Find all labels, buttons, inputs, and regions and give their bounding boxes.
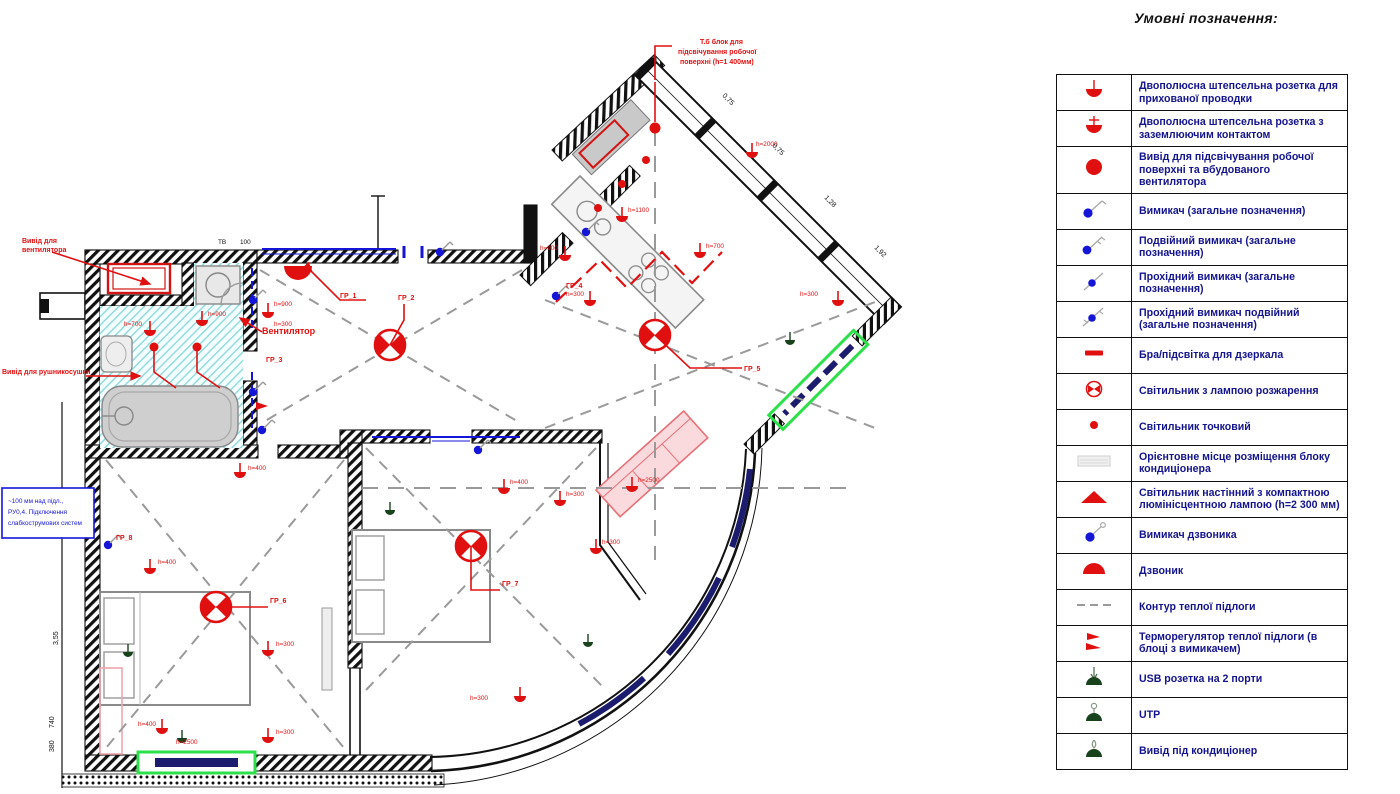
doorbell-symbol bbox=[284, 266, 312, 280]
legend-row: Дзвоник bbox=[1057, 553, 1348, 589]
socket-grounded-icon bbox=[1072, 113, 1116, 139]
svg-text:h=700: h=700 bbox=[124, 321, 142, 328]
floor-plan: Т.б блок для підсвічування робочої повер… bbox=[0, 0, 1056, 794]
bottom-window bbox=[138, 752, 255, 773]
svg-text:вентилятора: вентилятора bbox=[22, 247, 66, 254]
kitchen-counter bbox=[552, 176, 704, 328]
doorbell-icon bbox=[1072, 556, 1116, 582]
vent-note: Вивід для bbox=[22, 237, 57, 245]
legend-row: Подвійний вимикач (загальне позначення) bbox=[1057, 229, 1348, 265]
svg-text:h=300: h=300 bbox=[276, 729, 294, 736]
legend-row: USB розетка на 2 порти bbox=[1057, 661, 1348, 697]
usb-socket-icon bbox=[1072, 664, 1116, 690]
svg-text:740: 740 bbox=[49, 716, 56, 728]
legend-row: Прохідний вимикач подвійний (загальне по… bbox=[1057, 301, 1348, 337]
legend-row: Вивід для підсвічування робочої поверхні… bbox=[1057, 147, 1348, 194]
towel-note: Вивід для рушникосушки bbox=[2, 368, 90, 376]
svg-text:h=700: h=700 bbox=[706, 243, 724, 250]
legend-row: Світильник з лампою розжарення bbox=[1057, 373, 1348, 409]
svg-text:h=300: h=300 bbox=[470, 695, 488, 702]
legend-row: Світильник точковий bbox=[1057, 409, 1348, 445]
legend-panel: Умовні позначення: Двополюсна штепсельна… bbox=[1056, 0, 1356, 770]
svg-text:ГР_7: ГР_7 bbox=[502, 581, 519, 588]
svg-text:h=2500: h=2500 bbox=[176, 739, 198, 746]
svg-text:h=400: h=400 bbox=[138, 721, 156, 728]
socket-hidden-icon bbox=[1072, 77, 1116, 103]
svg-text:слабкострумових систем: слабкострумових систем bbox=[8, 519, 82, 527]
bathtub bbox=[102, 386, 238, 447]
legend-row: Контур теплої підлоги bbox=[1057, 589, 1348, 625]
svg-text:h=400: h=400 bbox=[510, 479, 528, 486]
legend-title: Умовні позначення: bbox=[1056, 10, 1356, 26]
svg-text:ГР_1: ГР_1 bbox=[340, 293, 357, 300]
spot-light-icon bbox=[1072, 412, 1116, 438]
svg-text:100: 100 bbox=[240, 239, 251, 246]
ac-unit-place-icon bbox=[1072, 448, 1116, 474]
svg-text:h=300: h=300 bbox=[800, 291, 818, 298]
svg-text:1,92: 1,92 bbox=[873, 244, 888, 259]
svg-text:1,28: 1,28 bbox=[823, 194, 838, 209]
legend-row: Терморегулятор теплої підлоги (в блоці з… bbox=[1057, 625, 1348, 661]
switch-icon bbox=[1072, 196, 1116, 222]
thermostat-symbol bbox=[256, 402, 268, 410]
legend-row: UTP bbox=[1057, 697, 1348, 733]
worktop-note: Т.б блок для bbox=[700, 38, 743, 46]
svg-text:РУ0,4. Підключення: РУ0,4. Підключення bbox=[8, 508, 68, 516]
svg-text:підсвічування робочої: підсвічування робочої bbox=[678, 48, 758, 56]
svg-text:h=2500: h=2500 bbox=[638, 477, 660, 484]
svg-text:ГР_8: ГР_8 bbox=[116, 535, 133, 542]
svg-text:h=400: h=400 bbox=[248, 465, 266, 472]
legend-row: Двополюсна штепсельна розетка з заземлюю… bbox=[1057, 111, 1348, 147]
svg-text:h=900: h=900 bbox=[208, 311, 226, 318]
svg-text:поверхні (h=1 400мм): поверхні (h=1 400мм) bbox=[680, 58, 754, 66]
bathroom bbox=[100, 263, 243, 448]
svg-text:ГР_6: ГР_6 bbox=[270, 598, 287, 605]
svg-text:h=400: h=400 bbox=[158, 559, 176, 566]
svg-text:ГР_5: ГР_5 bbox=[744, 366, 761, 373]
svg-text:h=300: h=300 bbox=[274, 321, 292, 328]
svg-text:h=300: h=300 bbox=[566, 491, 584, 498]
svg-text:~100 мм над підл.,: ~100 мм над підл., bbox=[8, 497, 63, 505]
switch-double-icon bbox=[1072, 232, 1116, 258]
legend-row: Вимикач (загальне позначення) bbox=[1057, 193, 1348, 229]
svg-text:h=1100: h=1100 bbox=[628, 207, 649, 214]
blue-note-box: ~100 мм над підл., РУ0,4. Підключення сл… bbox=[2, 488, 94, 538]
svg-text:ГР_3: ГР_3 bbox=[266, 357, 283, 364]
svg-text:h=300: h=300 bbox=[276, 641, 294, 648]
ac-outlet-icon bbox=[1072, 736, 1116, 762]
doorbell-switch-icon bbox=[1072, 520, 1116, 546]
svg-text:ГР_2: ГР_2 bbox=[398, 295, 415, 302]
svg-text:h=300: h=300 bbox=[602, 539, 620, 546]
legend-row: Вимикач дзвоника bbox=[1057, 517, 1348, 553]
svg-text:h=900: h=900 bbox=[274, 301, 292, 308]
svg-text:380: 380 bbox=[49, 740, 56, 752]
svg-text:h=300: h=300 bbox=[566, 291, 584, 298]
ac-indoor-unit bbox=[322, 608, 332, 690]
floor-thermostat-icon bbox=[1072, 628, 1116, 654]
worktop-light-outlet-icon bbox=[1072, 154, 1116, 180]
wall-cfl-lamp-icon bbox=[1072, 484, 1116, 510]
sink bbox=[101, 336, 132, 372]
switch-pass-icon bbox=[1072, 268, 1116, 294]
sofa bbox=[596, 411, 708, 517]
kitchen-walls bbox=[520, 55, 903, 457]
legend-row: Світильник настінний з компактною люміні… bbox=[1057, 481, 1348, 517]
legend-table: Двополюсна штепсельна розетка для прихов… bbox=[1056, 74, 1348, 770]
svg-text:0,75: 0,75 bbox=[721, 92, 736, 107]
mirror-light-icon bbox=[1072, 340, 1116, 366]
svg-text:3,55: 3,55 bbox=[53, 631, 60, 645]
incandescent-lamp-icon bbox=[1072, 376, 1116, 402]
switch-pass-double-icon bbox=[1072, 304, 1116, 330]
svg-text:0,75: 0,75 bbox=[771, 142, 786, 157]
svg-text:h=900: h=900 bbox=[540, 245, 558, 252]
warm-floor-contour-icon bbox=[1072, 592, 1116, 618]
legend-row: Двополюсна штепсельна розетка для прихов… bbox=[1057, 75, 1348, 111]
legend-row: Вивід під кондиціонер bbox=[1057, 733, 1348, 769]
legend-row: Орієнтовне місце розміщення блоку кондиц… bbox=[1057, 445, 1348, 481]
legend-row: Бра/підсвітка для дзеркала bbox=[1057, 337, 1348, 373]
floor-plan-page: Т.б блок для підсвічування робочої повер… bbox=[0, 0, 1400, 794]
svg-text:ТВ: ТВ bbox=[218, 239, 226, 246]
legend-row: Прохідний вимикач (загальне позначення) bbox=[1057, 265, 1348, 301]
svg-text:ГР_4: ГР_4 bbox=[566, 283, 583, 290]
utp-icon bbox=[1072, 700, 1116, 726]
